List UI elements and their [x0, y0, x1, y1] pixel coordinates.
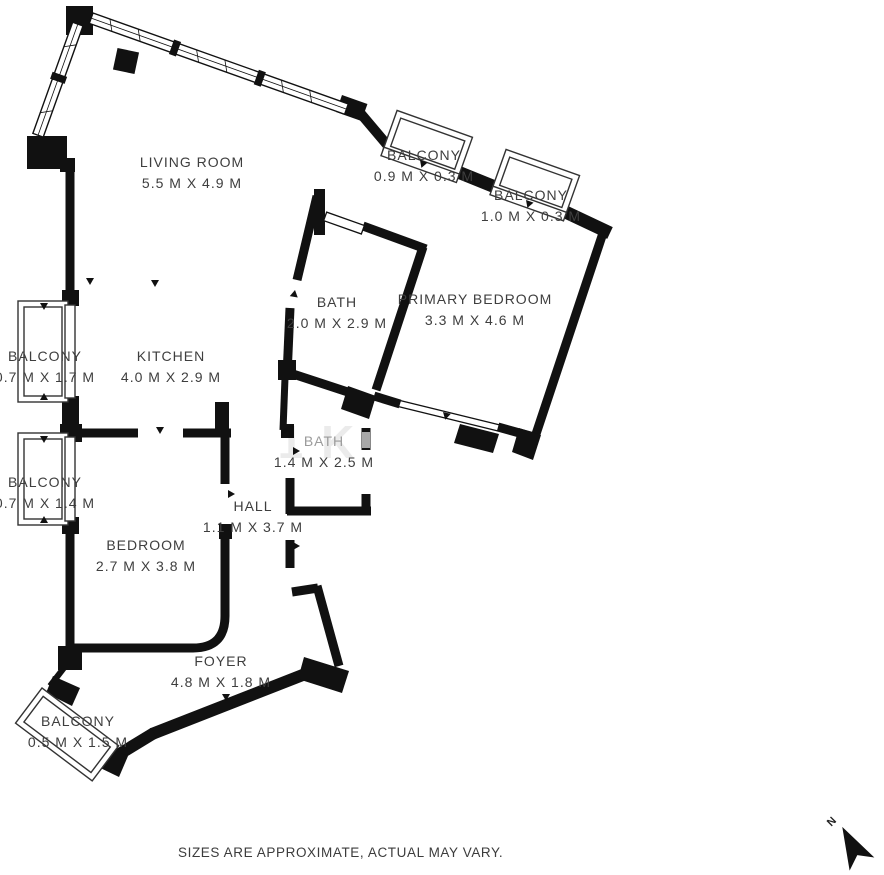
room-name: BALCONY: [8, 474, 82, 490]
disclaimer-text: SIZES ARE APPROXIMATE, ACTUAL MAY VARY.: [178, 845, 503, 860]
room-name: BATH: [317, 294, 357, 310]
room-label-bath-small: BATH 1.4 M X 2.5 M: [274, 431, 374, 473]
room-dims: 4.0 M X 2.9 M: [121, 367, 221, 388]
room-label-primary-bedroom: PRIMARY BEDROOM 3.3 M X 4.6 M: [398, 289, 553, 331]
room-dims: 2.7 M X 3.8 M: [96, 556, 196, 577]
room-label-balcony-left-1: BALCONY 0.7 M X 1.7 M: [0, 346, 95, 388]
room-dims: 0.5 M X 1.5 M: [28, 732, 128, 753]
room-dims: 1.0 M X 0.3 M: [481, 206, 581, 227]
room-name: KITCHEN: [137, 348, 205, 364]
room-dims: 1.1 M X 3.7 M: [203, 517, 303, 538]
room-name: HALL: [233, 498, 272, 514]
room-label-kitchen: KITCHEN 4.0 M X 2.9 M: [121, 346, 221, 388]
room-label-balcony-left-2: BALCONY 0.7 M X 1.4 M: [0, 472, 95, 514]
room-name: BALCONY: [41, 713, 115, 729]
room-dims: 5.5 M X 4.9 M: [140, 173, 244, 194]
north-arrow-icon: [830, 820, 874, 870]
room-label-balcony-bottom: BALCONY 0.5 M X 1.5 M: [28, 711, 128, 753]
room-name: BALCONY: [494, 187, 568, 203]
room-name: PRIMARY BEDROOM: [398, 291, 553, 307]
window-bath: [324, 212, 365, 234]
room-name: BEDROOM: [106, 537, 185, 553]
room-name: BALCONY: [8, 348, 82, 364]
room-dims: 0.7 M X 1.7 M: [0, 367, 95, 388]
room-label-bedroom: BEDROOM 2.7 M X 3.8 M: [96, 535, 196, 577]
room-dims: 3.3 M X 4.6 M: [398, 310, 553, 331]
room-label-balcony-top-1: BALCONY 0.9 M X 0.3 M: [374, 145, 474, 187]
room-dims: 4.8 M X 1.8 M: [171, 672, 271, 693]
window-band-left: [31, 22, 84, 138]
room-label-bath-main: BATH 2.0 M X 2.9 M: [287, 292, 387, 334]
room-dims: 0.7 M X 1.4 M: [0, 493, 95, 514]
room-name: BALCONY: [387, 147, 461, 163]
floor-plan: LIVING ROOM 5.5 M X 4.9 M KITCHEN 4.0 M …: [0, 0, 884, 875]
room-dims: 1.4 M X 2.5 M: [274, 452, 374, 473]
room-label-hall: HALL 1.1 M X 3.7 M: [203, 496, 303, 538]
column: [113, 48, 139, 74]
floor-plan-walls: [0, 0, 884, 875]
closet: [454, 424, 499, 453]
room-label-balcony-top-2: BALCONY 1.0 M X 0.3 M: [481, 185, 581, 227]
room-label-living-room: LIVING ROOM 5.5 M X 4.9 M: [140, 152, 244, 194]
room-name: LIVING ROOM: [140, 154, 244, 170]
room-dims: 2.0 M X 2.9 M: [287, 313, 387, 334]
room-dims: 0.9 M X 0.3 M: [374, 166, 474, 187]
room-label-foyer: FOYER 4.8 M X 1.8 M: [171, 651, 271, 693]
room-name: BATH: [304, 433, 344, 449]
room-name: FOYER: [194, 653, 247, 669]
